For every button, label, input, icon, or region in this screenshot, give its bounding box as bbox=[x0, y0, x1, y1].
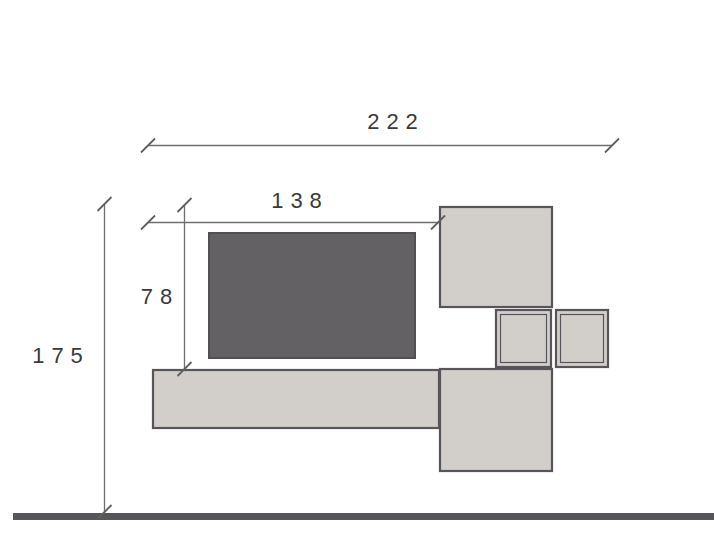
side-column bbox=[440, 369, 552, 471]
dimension-total-height: 175 bbox=[32, 197, 111, 519]
drawing-svg: 222 138 78 175 bbox=[0, 0, 714, 556]
floor-line bbox=[13, 513, 714, 520]
cube-shelf-1 bbox=[496, 310, 551, 367]
wall-cabinet bbox=[440, 207, 552, 307]
dim-label-upper-width: 138 bbox=[271, 188, 329, 213]
dimension-total-width: 222 bbox=[141, 109, 619, 153]
dimension-hanging-height: 78 bbox=[141, 198, 192, 376]
elevation-drawing: 222 138 78 175 bbox=[0, 0, 714, 556]
dim-label-total-height: 175 bbox=[32, 343, 90, 368]
dim-label-total-width: 222 bbox=[367, 109, 425, 134]
tv-panel bbox=[209, 233, 415, 358]
dimension-upper-width: 138 bbox=[141, 188, 445, 230]
cube-shelf-2-frame bbox=[556, 310, 608, 367]
cube-shelf-1-frame bbox=[496, 310, 551, 367]
cube-shelf-2 bbox=[556, 310, 608, 367]
bench bbox=[153, 370, 439, 428]
dim-label-hanging-height: 78 bbox=[141, 284, 179, 309]
